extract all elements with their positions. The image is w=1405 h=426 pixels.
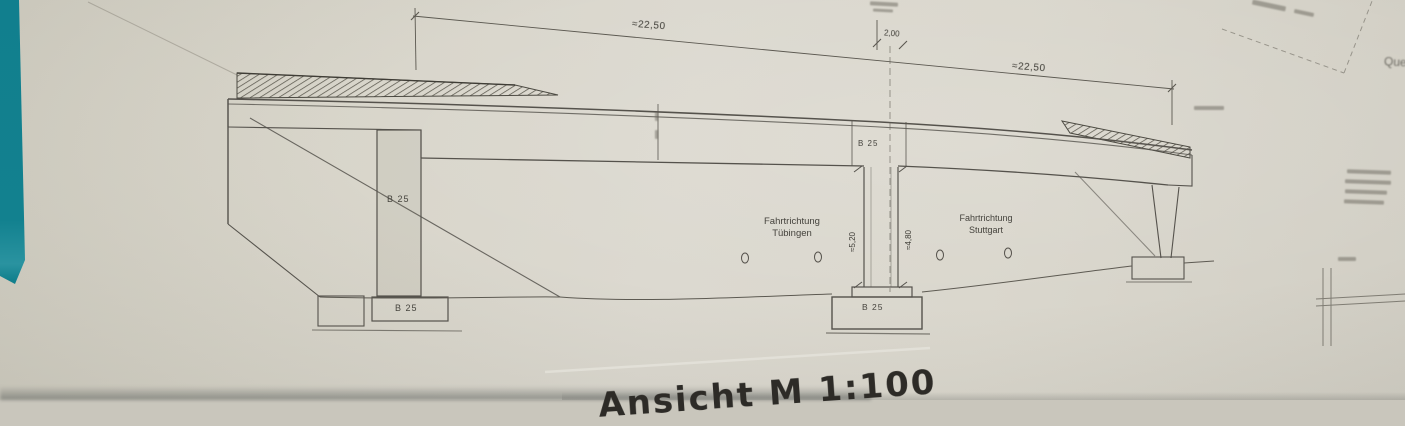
level-note-smudge (1194, 106, 1224, 110)
concrete-label-center-footing: B 25 (862, 302, 884, 312)
bridge-elevation-drawing (0, 0, 1405, 400)
right-abutment (1075, 172, 1192, 282)
dim-center-gap: 2,00 (884, 28, 900, 38)
deck-girder (228, 99, 1192, 186)
fragment-dim-smudge (1338, 257, 1356, 261)
direction-left-line2: Tübingen (742, 228, 842, 240)
direction-left-line1: Fahrtrichtung (742, 216, 842, 228)
dim-pier-height-right: ≈4,80 (904, 230, 913, 250)
ground-line (320, 261, 1214, 300)
section-fragment-right (1316, 268, 1405, 346)
elevation-linework (0, 0, 1405, 400)
approach-slab-left (237, 73, 558, 98)
clearance-markers (742, 248, 1012, 263)
concrete-label-pier-footing: B 25 (395, 303, 418, 313)
joint-dim-smudge-2 (655, 130, 658, 139)
concrete-label-deck: B 25 (858, 139, 878, 148)
concrete-label-pier: B 25 (387, 194, 410, 204)
dim-pier-height-left: ≈5,20 (848, 232, 857, 252)
direction-label-tuebingen: Fahrtrichtung Tübingen (742, 216, 842, 240)
direction-right-line2: Stuttgart (936, 224, 1036, 236)
direction-label-stuttgart: Fahrtrichtung Stuttgart (936, 212, 1036, 236)
joint-dim-smudge-1 (655, 112, 658, 121)
edge-note: Quer (1384, 54, 1405, 69)
direction-right-line1: Fahrtrichtung (936, 212, 1036, 224)
embankment-line-left (88, 2, 237, 75)
photo-of-bridge-drawing: { "drawing": { "caption": "Ansicht M 1:1… (0, 0, 1405, 400)
